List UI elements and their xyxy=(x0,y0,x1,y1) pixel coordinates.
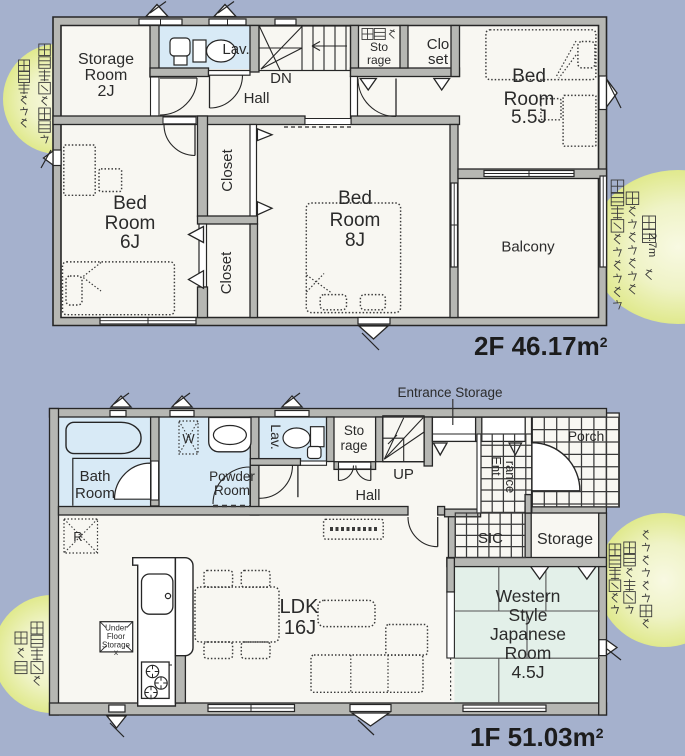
svg-text:Entrance Storage: Entrance Storage xyxy=(397,385,502,400)
svg-text:Room: Room xyxy=(214,483,250,498)
svg-text:Room: Room xyxy=(85,67,128,84)
svg-text:rance: rance xyxy=(503,461,518,494)
svg-text:x: x xyxy=(114,648,118,657)
svg-text:Style: Style xyxy=(509,605,548,625)
svg-text:Lav.: Lav. xyxy=(222,41,249,58)
svg-text:16J: 16J xyxy=(284,617,316,639)
svg-text:set: set xyxy=(428,51,449,68)
svg-text:1F 51.03m2: 1F 51.03m2 xyxy=(470,722,604,752)
svg-text:Sto: Sto xyxy=(370,40,388,54)
svg-text:2.7m: 2.7m xyxy=(646,233,658,257)
svg-text:Sto: Sto xyxy=(344,423,364,438)
svg-text:SIC: SIC xyxy=(478,530,503,547)
svg-text:Bath: Bath xyxy=(80,468,111,485)
svg-text:2F 46.17m2: 2F 46.17m2 xyxy=(474,331,608,361)
svg-text:Balcony: Balcony xyxy=(501,239,555,256)
svg-text:Bed: Bed xyxy=(338,188,372,209)
svg-text:Closet: Closet xyxy=(218,251,235,294)
svg-text:Ent: Ent xyxy=(489,456,504,476)
svg-text:8J: 8J xyxy=(345,230,365,251)
svg-text:Closet: Closet xyxy=(219,148,236,191)
svg-text:Storage: Storage xyxy=(78,51,134,68)
svg-text:Room: Room xyxy=(105,213,156,234)
svg-text:Powder: Powder xyxy=(209,469,255,484)
svg-text:LDK: LDK xyxy=(280,596,320,618)
svg-text:6J: 6J xyxy=(120,232,140,253)
svg-text:rage: rage xyxy=(367,53,391,67)
svg-text:Room: Room xyxy=(75,485,115,502)
svg-text:DN: DN xyxy=(270,70,292,87)
svg-text:5.5J: 5.5J xyxy=(511,107,547,128)
svg-text:W: W xyxy=(182,431,195,446)
svg-text:Room: Room xyxy=(505,643,552,663)
svg-text:Lav.: Lav. xyxy=(268,424,284,449)
svg-text:Hall: Hall xyxy=(244,90,270,107)
svg-text:Bed: Bed xyxy=(113,193,147,214)
svg-text:Storage: Storage xyxy=(537,531,593,548)
svg-text:rage: rage xyxy=(340,438,367,453)
svg-text:Porch: Porch xyxy=(568,428,605,444)
svg-text:Western: Western xyxy=(496,586,561,606)
svg-text:R: R xyxy=(73,529,82,544)
svg-text:2J: 2J xyxy=(98,83,115,100)
svg-text:Bed: Bed xyxy=(512,66,546,87)
svg-text:Hall: Hall xyxy=(356,488,381,504)
svg-text:UP: UP xyxy=(393,466,414,483)
svg-text:4.5J: 4.5J xyxy=(511,662,544,682)
svg-text:Room: Room xyxy=(330,210,381,231)
svg-text:Japanese: Japanese xyxy=(490,624,566,644)
